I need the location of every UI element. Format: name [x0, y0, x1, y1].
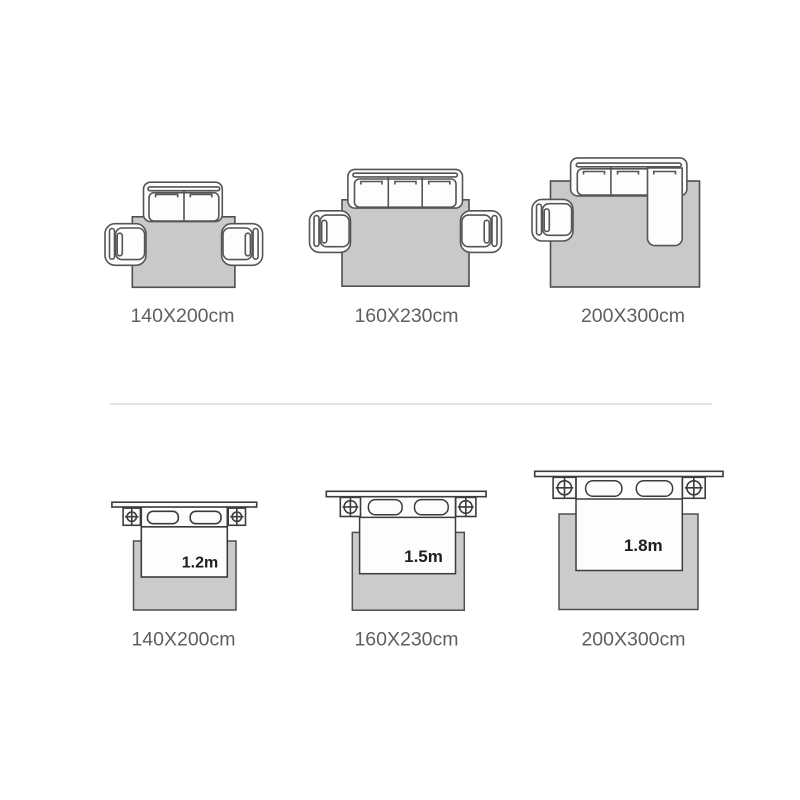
svg-text:140X200cm: 140X200cm: [130, 305, 234, 327]
svg-text:1.5m: 1.5m: [404, 547, 443, 566]
svg-text:1.2m: 1.2m: [182, 555, 218, 572]
svg-text:200X300cm: 200X300cm: [581, 305, 685, 327]
svg-text:160X230cm: 160X230cm: [354, 629, 458, 651]
svg-text:140X200cm: 140X200cm: [131, 629, 235, 651]
svg-text:1.8m: 1.8m: [624, 536, 663, 555]
svg-text:200X300cm: 200X300cm: [581, 629, 685, 651]
svg-text:160X230cm: 160X230cm: [354, 305, 458, 327]
